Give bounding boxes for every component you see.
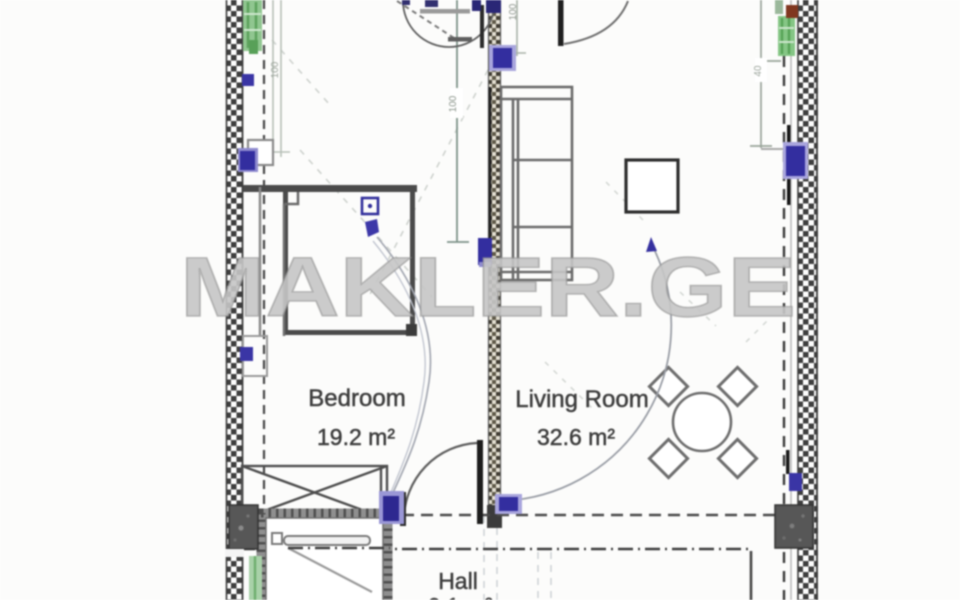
svg-text:Bedroom: Bedroom [308,385,405,412]
svg-text:MAKLER.GE: MAKLER.GE [180,240,796,334]
svg-text:Living Room: Living Room [515,386,648,413]
svg-text:100: 100 [508,3,519,20]
svg-text:32.6 m²: 32.6 m² [537,424,615,450]
svg-text:40: 40 [753,65,764,77]
svg-text:6.1 m²: 6.1 m² [427,593,493,600]
svg-text:100: 100 [270,61,281,78]
svg-text:100: 100 [448,95,459,112]
svg-text:Hall: Hall [438,568,478,594]
svg-text:19.2 m²: 19.2 m² [317,424,395,450]
